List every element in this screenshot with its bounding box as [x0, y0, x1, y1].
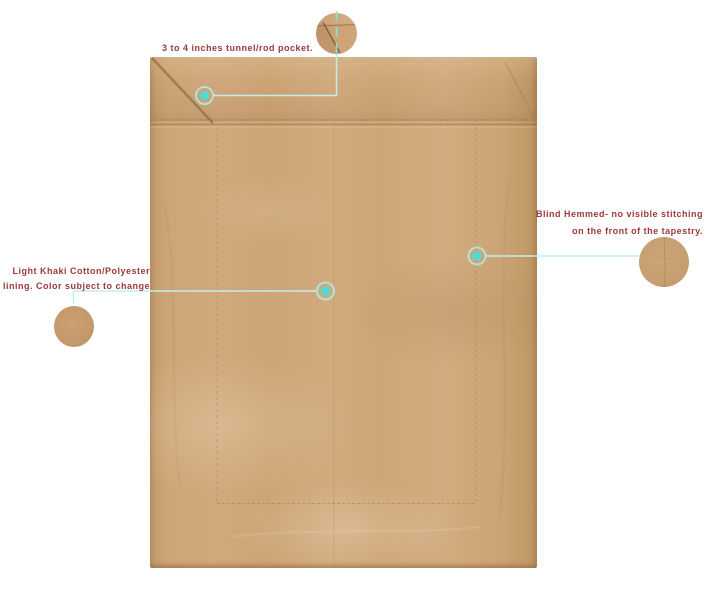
- blind-hem-label: Blind Hemmed- no visible stitching on th…: [536, 206, 703, 239]
- rod-pocket-zoom-detail: [316, 13, 357, 54]
- rod-pocket-zoom-circle: [316, 13, 357, 54]
- blind-hem-label-line2: on the front of the tapestry.: [536, 223, 703, 240]
- rod-pocket-label: 3 to 4 inches tunnel/rod pocket.: [162, 43, 313, 53]
- blind-hem-zoom-circle: [639, 237, 689, 287]
- rod-pocket-label-text: 3 to 4 inches tunnel/rod pocket.: [162, 43, 313, 53]
- tapestry-back-photo: [150, 57, 537, 568]
- fabric-seam-lines: [150, 57, 537, 568]
- product-annotation-image: 3 to 4 inches tunnel/rod pocket. Blind H…: [0, 0, 706, 600]
- lining-label: Light Khaki Cotton/Polyester lining. Col…: [3, 264, 150, 293]
- lining-zoom-circle: [54, 306, 94, 347]
- lining-label-line2: lining. Color subject to change: [3, 279, 150, 294]
- blind-hem-label-line1: Blind Hemmed- no visible stitching: [536, 206, 703, 223]
- blind-hem-zoom-detail: [639, 237, 689, 287]
- lining-label-line1: Light Khaki Cotton/Polyester: [3, 264, 150, 279]
